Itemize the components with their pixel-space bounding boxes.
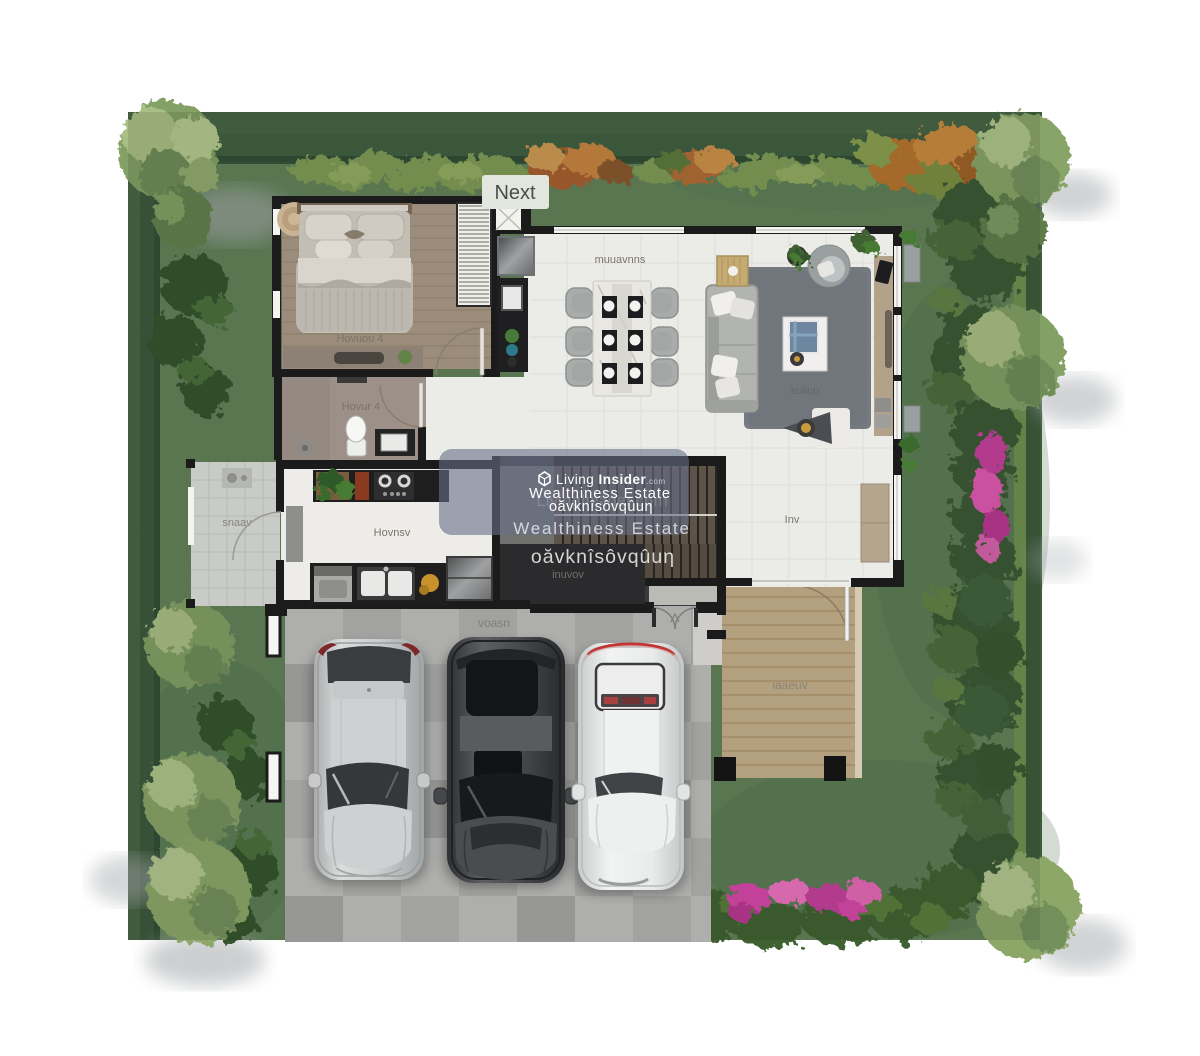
svg-text:Inv: Inv xyxy=(785,514,800,526)
svg-text:iaaeuv: iaaeuv xyxy=(772,678,807,692)
svg-text:Next: Next xyxy=(494,182,536,204)
svg-text:Wealthiness Estate: Wealthiness Estate xyxy=(513,519,691,538)
svg-text:voasn: voasn xyxy=(478,616,510,630)
svg-text:Hovnsv: Hovnsv xyxy=(374,527,411,539)
svg-text:suiiun: suiiun xyxy=(791,385,820,397)
svg-text:muuavnns: muuavnns xyxy=(595,254,646,266)
svg-text:inuvov: inuvov xyxy=(552,569,584,581)
svg-text:oăvknîsôvqûuη: oăvknîsôvqûuη xyxy=(531,546,675,568)
svg-text:Hovur 4: Hovur 4 xyxy=(342,401,381,413)
svg-text:LivingInsider.com: LivingInsider.com xyxy=(536,491,667,510)
svg-text:snaav: snaav xyxy=(222,517,252,529)
svg-text:Hovuou 4: Hovuou 4 xyxy=(336,333,383,345)
